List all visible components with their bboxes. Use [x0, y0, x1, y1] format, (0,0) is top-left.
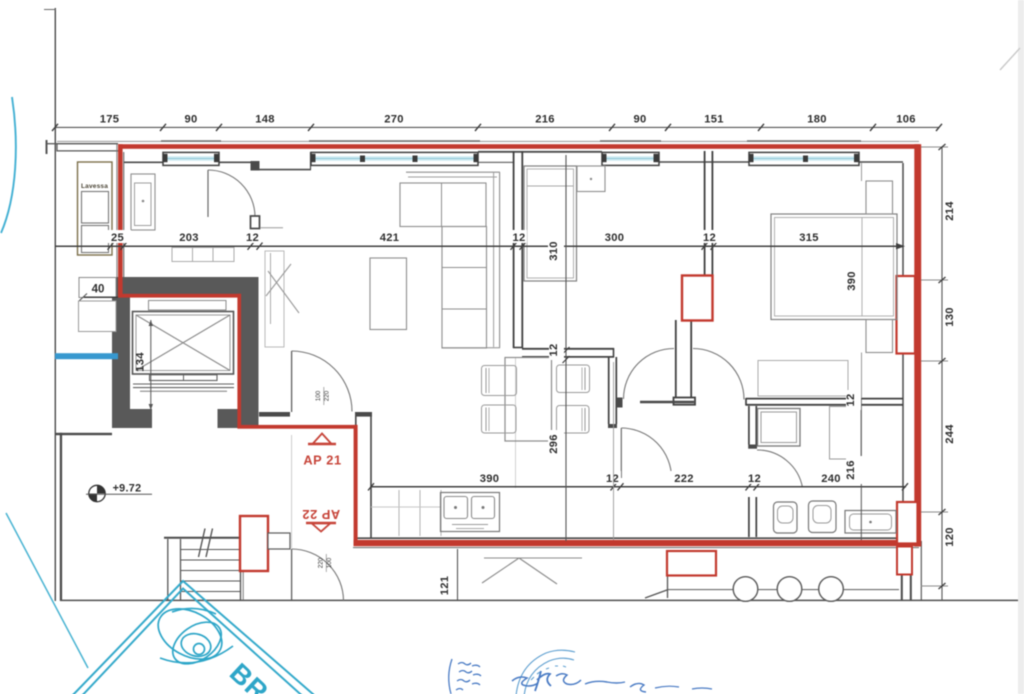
- svg-text:90: 90: [633, 114, 646, 126]
- svg-text:151: 151: [704, 114, 724, 126]
- svg-text:270: 270: [384, 114, 404, 126]
- svg-text:220: 220: [318, 557, 325, 568]
- svg-text:390: 390: [480, 473, 500, 485]
- svg-text:216: 216: [845, 460, 857, 480]
- svg-text:222: 222: [674, 473, 694, 485]
- svg-text:421: 421: [380, 232, 400, 244]
- svg-text:134: 134: [135, 352, 147, 372]
- svg-text:12: 12: [246, 232, 259, 244]
- svg-text:390: 390: [846, 271, 858, 291]
- svg-text:+9.72: +9.72: [113, 483, 142, 495]
- svg-text:130: 130: [944, 307, 956, 327]
- svg-text:220: 220: [324, 390, 331, 401]
- svg-text:AP 21: AP 21: [303, 453, 341, 468]
- svg-text:12: 12: [845, 393, 857, 406]
- svg-text:180: 180: [807, 114, 827, 126]
- svg-text:100: 100: [326, 557, 333, 568]
- svg-text:12: 12: [512, 232, 525, 244]
- svg-text:12: 12: [703, 232, 716, 244]
- svg-text:148: 148: [255, 114, 275, 126]
- svg-text:216: 216: [535, 114, 555, 126]
- svg-text:121: 121: [439, 576, 451, 596]
- svg-text:296: 296: [548, 434, 560, 454]
- svg-text:106: 106: [896, 114, 916, 126]
- svg-text:AP 22: AP 22: [302, 507, 340, 522]
- svg-text:Lavessa: Lavessa: [81, 183, 108, 190]
- svg-text:12: 12: [748, 473, 761, 485]
- svg-text:120: 120: [944, 527, 956, 547]
- svg-text:300: 300: [605, 232, 625, 244]
- svg-text:25: 25: [111, 232, 124, 244]
- svg-text:214: 214: [944, 201, 956, 221]
- svg-text:244: 244: [944, 424, 956, 444]
- svg-text:175: 175: [100, 114, 120, 126]
- svg-text:240: 240: [821, 473, 841, 485]
- svg-text:100: 100: [315, 390, 322, 401]
- svg-text:315: 315: [799, 232, 819, 244]
- svg-text:12: 12: [548, 343, 560, 356]
- svg-text:203: 203: [179, 232, 199, 244]
- svg-text:310: 310: [548, 241, 560, 261]
- svg-text:90: 90: [184, 114, 197, 126]
- svg-text:12: 12: [606, 473, 619, 485]
- svg-text:40: 40: [92, 284, 105, 296]
